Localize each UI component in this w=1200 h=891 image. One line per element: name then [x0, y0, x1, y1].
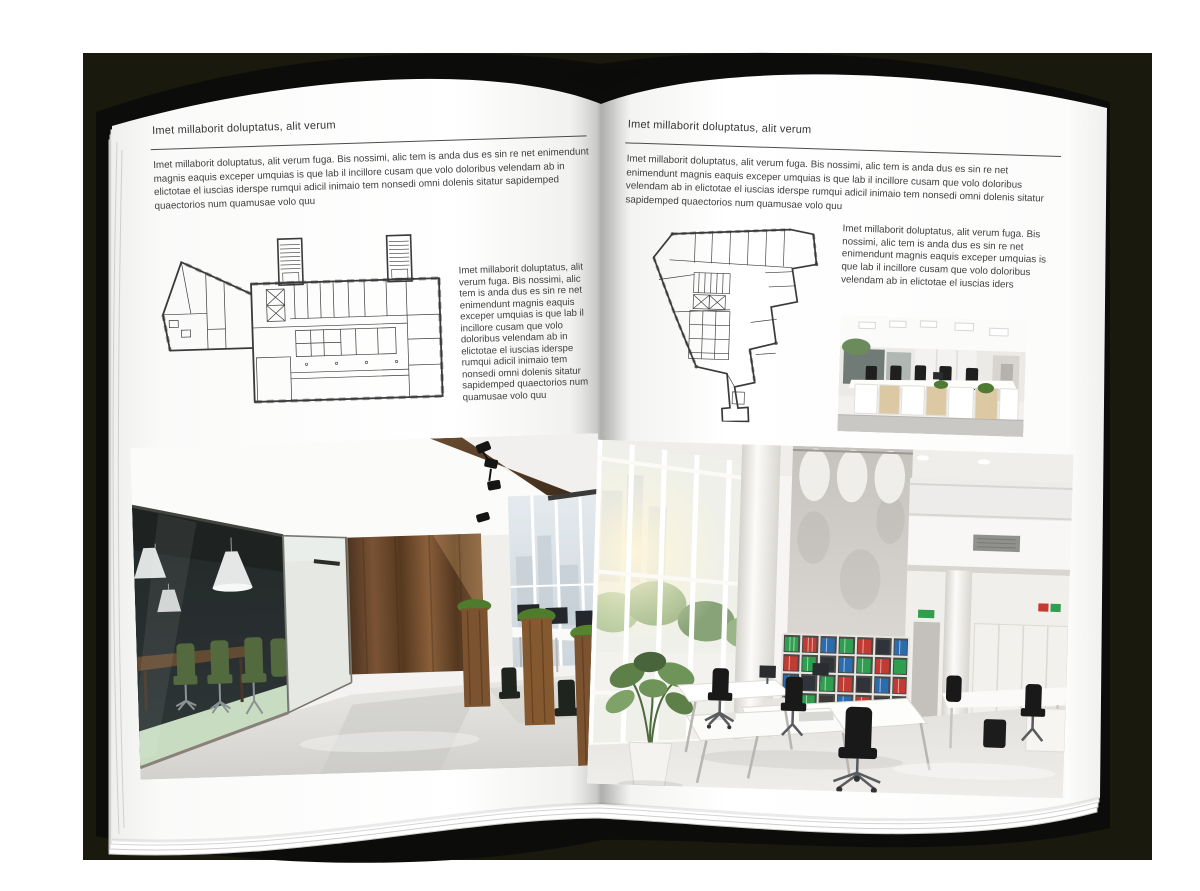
left-page: Imet millaborit doluptatus, alit verum I…: [122, 111, 611, 815]
plan-caption-text: Imet millaborit doluptatus, alit verum f…: [841, 223, 1057, 293]
floor-plan-right: [635, 219, 831, 425]
intro-paragraph: Imet millaborit doluptatus, alit verum f…: [625, 152, 1061, 220]
plan-caption-text: Imet millaborit doluptatus, alit verum f…: [459, 262, 589, 404]
office-photo-left: [130, 433, 608, 780]
right-page: Imet millaborit doluptatus, alit verum I…: [592, 118, 1087, 823]
office-photo-small: [837, 315, 1027, 437]
office-photo-right: [587, 440, 1074, 799]
intro-paragraph: Imet millaborit doluptatus, alit verum f…: [153, 145, 599, 214]
brochure-mockup-stage: Imet millaborit doluptatus, alit verum I…: [0, 0, 1200, 891]
floor-plan-left: [151, 218, 459, 419]
